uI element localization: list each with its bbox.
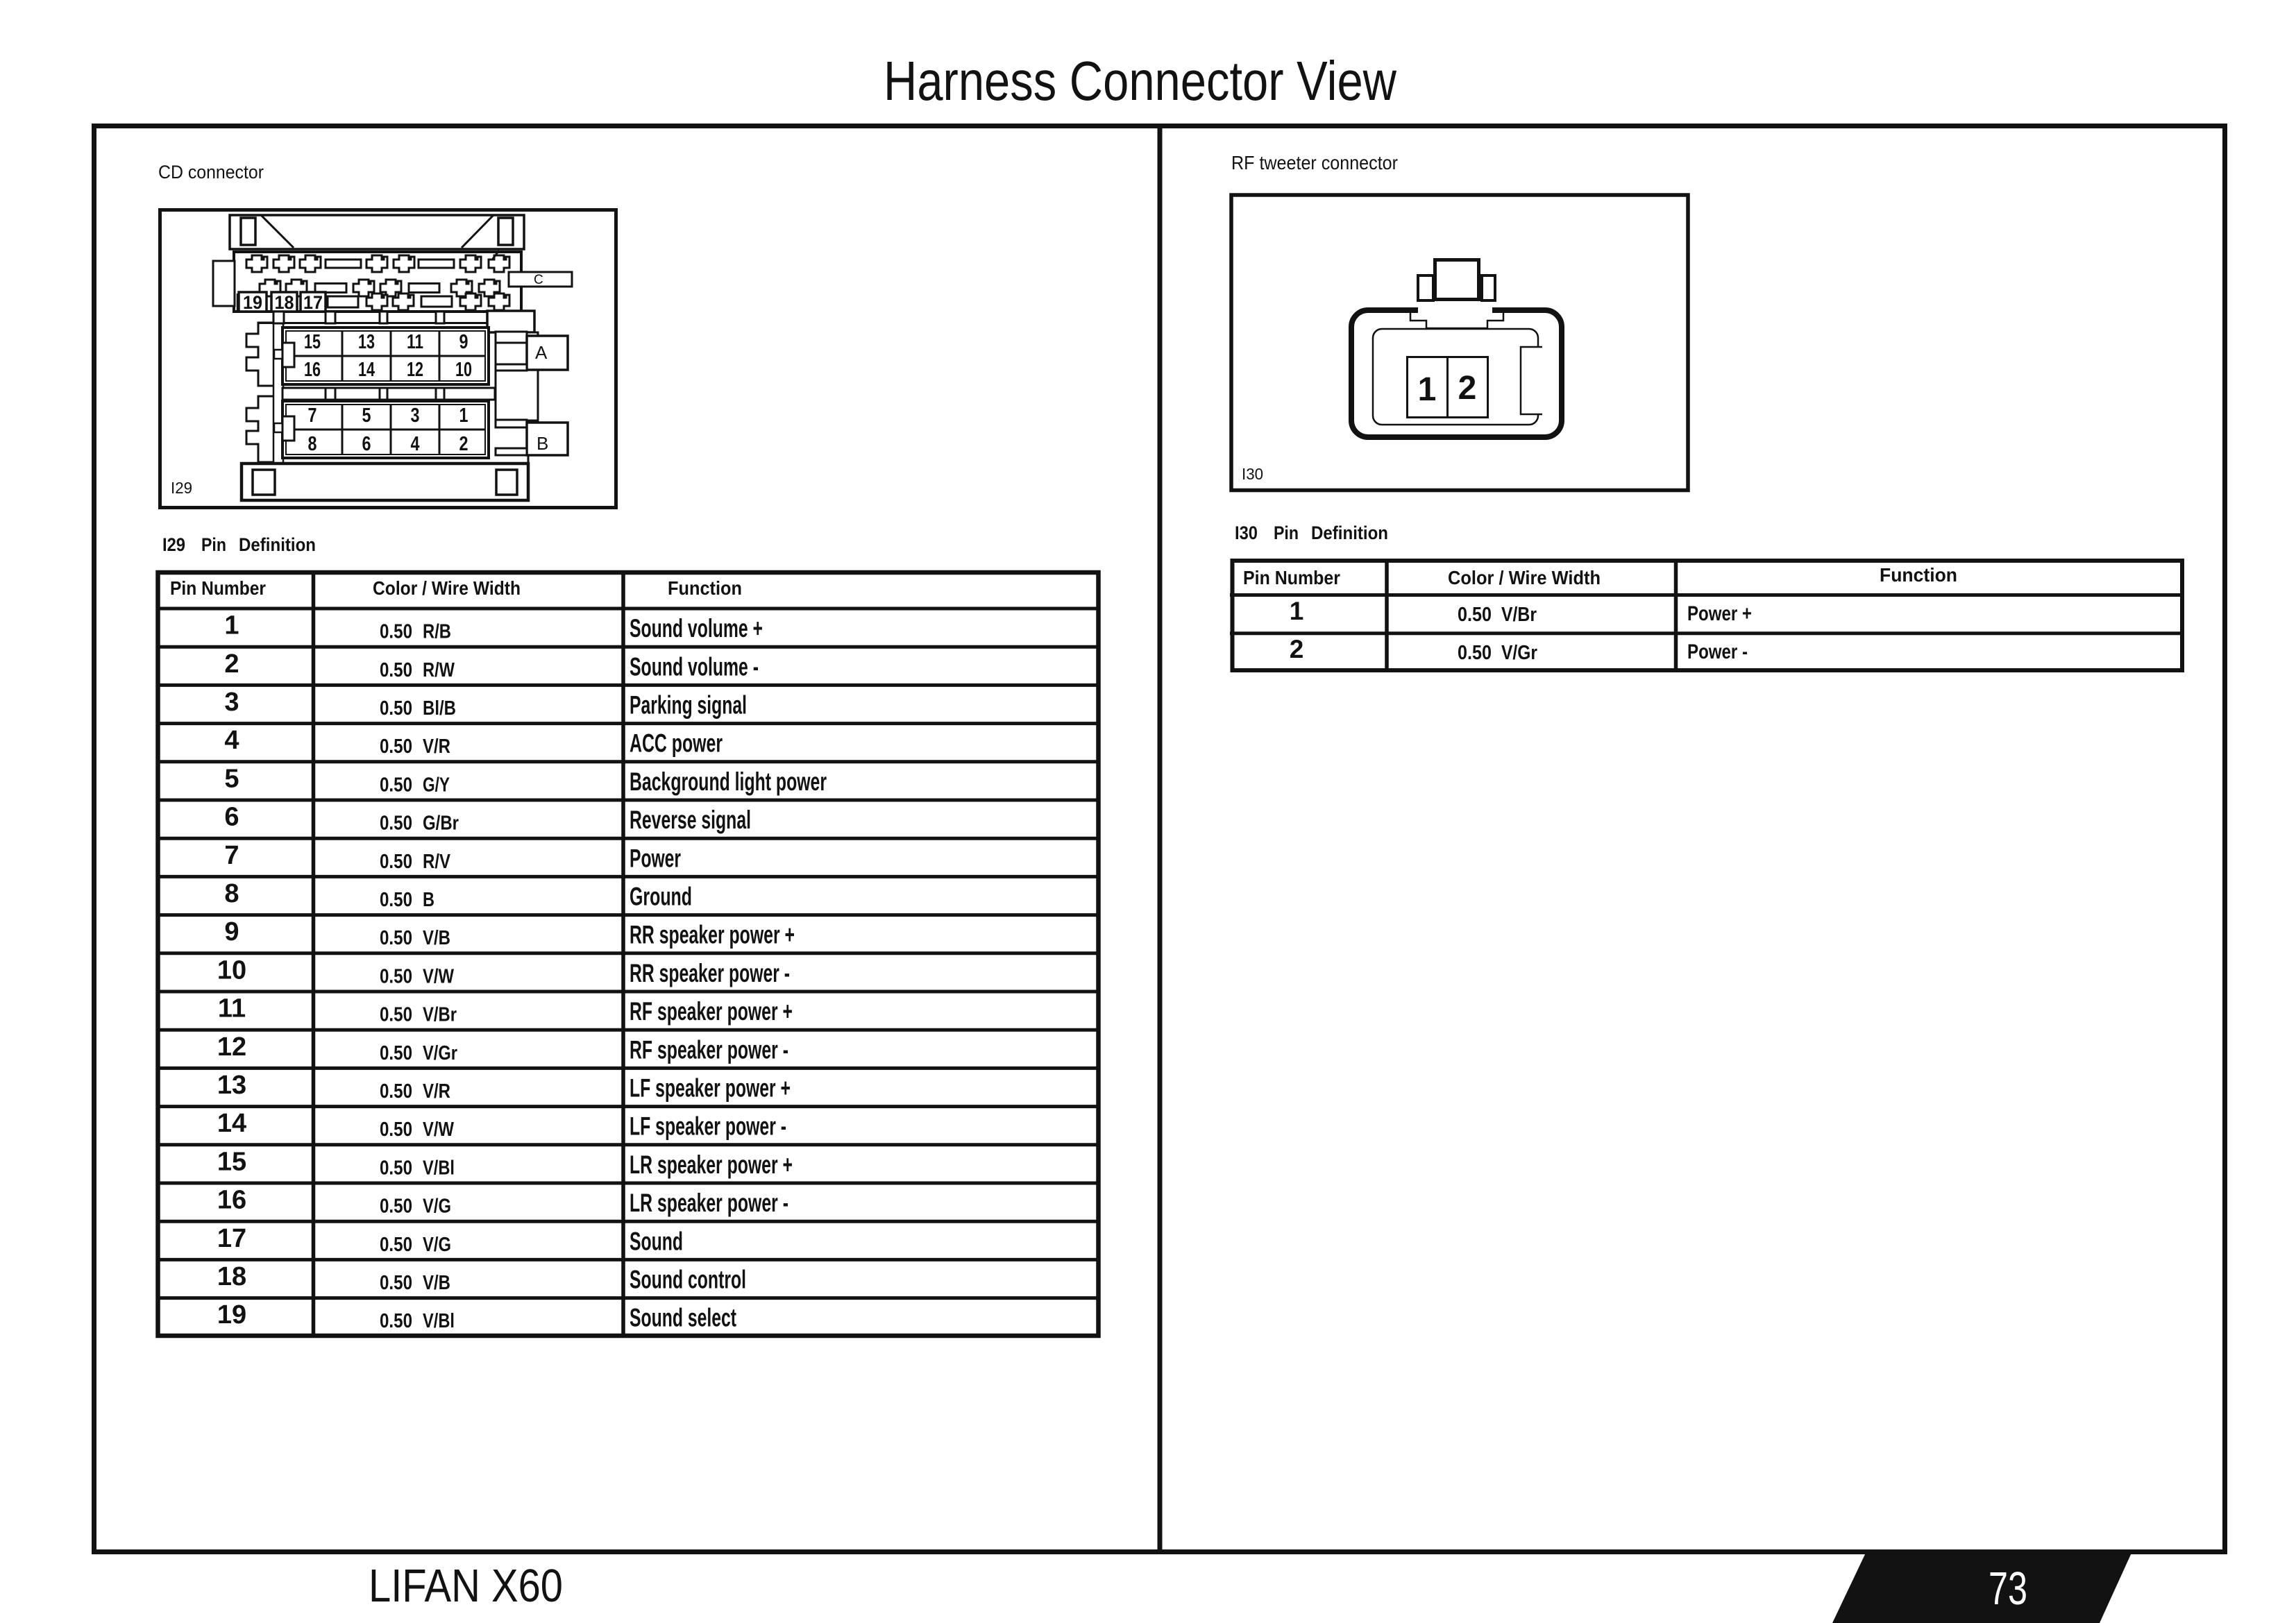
svg-text:18: 18	[217, 1262, 246, 1291]
svg-text:RF tweeter connector: RF tweeter connector	[1231, 152, 1398, 173]
svg-text:13: 13	[217, 1071, 246, 1100]
svg-text:1: 1	[1418, 371, 1437, 408]
svg-text:1: 1	[1290, 597, 1304, 625]
svg-text:Sound control: Sound control	[630, 1266, 746, 1294]
svg-text:12: 12	[217, 1033, 246, 1062]
svg-text:Pin Number: Pin Number	[170, 577, 266, 599]
svg-text:4: 4	[224, 726, 239, 755]
svg-text:A: A	[535, 342, 548, 363]
svg-text:19: 19	[243, 292, 262, 313]
svg-text:2: 2	[224, 649, 239, 679]
svg-text:8: 8	[308, 433, 317, 455]
svg-text:16: 16	[304, 359, 321, 381]
svg-text:1: 1	[459, 405, 469, 427]
svg-text:RR speaker power -: RR speaker power -	[630, 959, 790, 987]
svg-text:Color / Wire Width: Color / Wire Width	[1448, 567, 1601, 588]
svg-text:I30: I30	[1242, 465, 1263, 483]
svg-text:3: 3	[411, 405, 420, 427]
svg-text:3: 3	[224, 688, 239, 717]
svg-text:11: 11	[218, 994, 246, 1023]
svg-text:5: 5	[224, 764, 239, 793]
svg-text:8: 8	[224, 879, 239, 908]
svg-text:Background light power: Background light power	[630, 767, 827, 796]
svg-text:19: 19	[217, 1300, 246, 1329]
svg-text:LF speaker power +: LF speaker power +	[630, 1074, 791, 1103]
svg-text:12: 12	[407, 359, 423, 381]
svg-text:4: 4	[411, 433, 420, 455]
svg-text:11: 11	[407, 331, 423, 353]
svg-text:C: C	[534, 273, 543, 287]
svg-text:2: 2	[1290, 635, 1304, 663]
svg-text:Parking signal: Parking signal	[630, 691, 747, 720]
svg-text:2: 2	[459, 433, 469, 455]
svg-text:RR speaker power +: RR speaker power +	[630, 921, 795, 949]
svg-text:I29: I29	[171, 479, 192, 497]
svg-text:9: 9	[459, 331, 469, 353]
svg-text:Power -: Power -	[1687, 640, 1748, 663]
svg-text:2: 2	[1458, 370, 1477, 407]
svg-text:Pin Number: Pin Number	[1243, 567, 1340, 588]
svg-text:Power +: Power +	[1687, 602, 1752, 625]
svg-text:RF speaker power +: RF speaker power +	[630, 997, 793, 1026]
svg-text:6: 6	[224, 803, 239, 832]
svg-text:16: 16	[217, 1186, 246, 1215]
svg-text:LR speaker power +: LR speaker power +	[630, 1150, 793, 1179]
svg-text:LIFAN X60: LIFAN X60	[369, 1560, 563, 1612]
svg-text:13: 13	[358, 331, 375, 353]
svg-text:Ground: Ground	[630, 883, 692, 911]
svg-text:6: 6	[362, 433, 371, 455]
svg-text:7: 7	[224, 841, 239, 870]
svg-text:0.50B: 0.50B	[380, 889, 434, 911]
svg-text:7: 7	[308, 405, 317, 427]
svg-text:ACC power: ACC power	[630, 729, 723, 758]
svg-text:10: 10	[455, 359, 472, 381]
svg-text:LR speaker power -: LR speaker power -	[630, 1189, 788, 1217]
svg-text:10: 10	[217, 955, 246, 985]
svg-text:14: 14	[217, 1109, 246, 1138]
svg-text:Reverse signal: Reverse signal	[630, 806, 751, 834]
svg-text:RF speaker power -: RF speaker power -	[630, 1035, 788, 1064]
svg-text:Function: Function	[1880, 564, 1957, 586]
svg-text:18: 18	[275, 292, 294, 313]
svg-text:1: 1	[224, 611, 239, 640]
svg-text:Color / Wire Width: Color / Wire Width	[373, 577, 521, 599]
svg-text:9: 9	[224, 917, 239, 946]
svg-text:Sound volume +: Sound volume +	[630, 614, 763, 643]
svg-text:Harness Connector View: Harness Connector View	[884, 50, 1396, 112]
svg-text:5: 5	[362, 405, 371, 427]
svg-text:CD connector: CD connector	[158, 162, 264, 182]
svg-text:Sound select: Sound select	[630, 1304, 736, 1332]
svg-text:LF speaker power -: LF speaker power -	[630, 1112, 786, 1141]
svg-text:14: 14	[358, 359, 375, 381]
svg-text:Sound: Sound	[630, 1227, 683, 1255]
svg-text:15: 15	[217, 1147, 246, 1176]
svg-text:73: 73	[1989, 1563, 2027, 1615]
svg-text:Power: Power	[630, 844, 681, 872]
svg-text:17: 17	[217, 1224, 246, 1253]
svg-text:Function: Function	[668, 577, 742, 599]
svg-text:B: B	[537, 433, 548, 454]
svg-text:Sound volume -: Sound volume -	[630, 652, 759, 681]
svg-text:17: 17	[303, 292, 323, 313]
svg-text:15: 15	[304, 331, 321, 353]
